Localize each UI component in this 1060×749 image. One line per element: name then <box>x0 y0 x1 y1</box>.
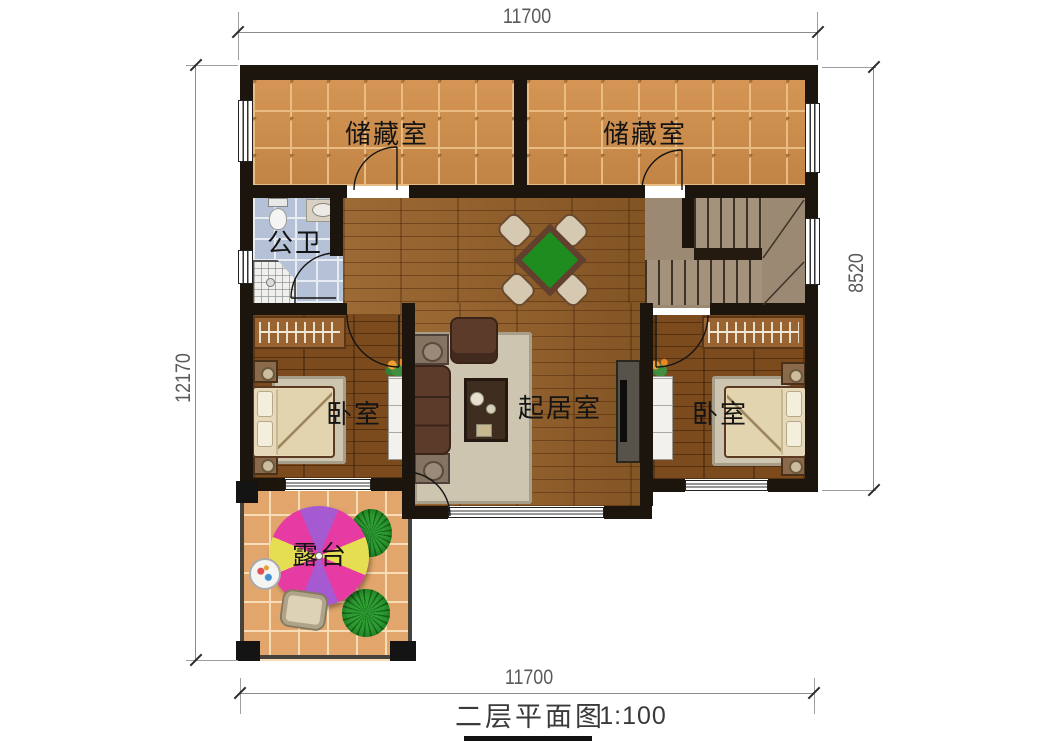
wall <box>402 506 448 519</box>
floor-plan: 储藏室 储藏室 公卫 卧室 起居室 卧室 露台 11700 11700 1217… <box>0 0 1060 749</box>
pillow-icon <box>786 391 802 417</box>
armchair-symbol <box>450 317 498 364</box>
wall <box>640 479 685 492</box>
window <box>285 479 371 490</box>
bedroom-left-label: 卧室 <box>318 398 390 426</box>
window <box>448 507 604 518</box>
dim-bottom-label: 11700 <box>487 666 572 690</box>
wall <box>240 65 818 80</box>
stair-landing-lower <box>762 260 805 305</box>
extension-line <box>822 490 876 491</box>
title-underline <box>464 736 592 741</box>
living-room-label: 起居室 <box>514 392 606 420</box>
side-table-symbol <box>414 453 450 484</box>
storage-right-label: 储藏室 <box>588 117 702 147</box>
window <box>238 100 253 162</box>
wall <box>402 303 415 506</box>
extension-line <box>822 67 876 68</box>
wall <box>409 185 645 198</box>
nightstand-symbol <box>253 360 278 383</box>
dim-left-label: 12170 <box>172 340 196 417</box>
wall <box>604 506 652 519</box>
pillow-icon <box>786 421 802 447</box>
hanger-rail-icon <box>259 322 340 343</box>
shower-drain-icon <box>266 278 275 287</box>
terrace-table-symbol <box>249 558 281 590</box>
wall <box>682 198 694 248</box>
terrace-parapet <box>240 491 244 659</box>
wall <box>640 303 653 506</box>
dresser-symbol <box>651 376 673 460</box>
dimension-line-right <box>873 67 874 491</box>
bedroom-right-label: 卧室 <box>684 398 756 426</box>
hanger-rail-icon <box>708 322 799 343</box>
window <box>805 103 820 173</box>
dimension-line-top <box>238 32 818 33</box>
wall <box>514 65 527 198</box>
wall <box>330 198 343 256</box>
wall <box>685 185 818 198</box>
stair-landing-upper <box>762 198 805 248</box>
wall <box>371 478 415 491</box>
stair-flight-lower <box>645 260 762 305</box>
plan-title: 二层平面图 <box>462 698 598 730</box>
wardrobe-symbol <box>702 316 805 349</box>
window <box>685 480 768 491</box>
wall <box>240 303 347 315</box>
bush-symbol <box>342 589 390 637</box>
plate-icon <box>470 392 484 406</box>
wall <box>768 479 818 492</box>
plate-icon <box>486 404 496 414</box>
stair-flight-upper <box>694 198 762 248</box>
terrace-post <box>236 641 260 661</box>
pillow-icon <box>257 391 273 417</box>
wall <box>694 248 762 260</box>
toilet-tank-symbol <box>268 198 288 207</box>
bathroom-label: 公卫 <box>261 227 329 255</box>
plan-scale: 1:100 <box>600 701 666 731</box>
wall <box>240 185 347 198</box>
terrace-chair-symbol <box>279 588 330 632</box>
storage-left-label: 储藏室 <box>330 117 444 147</box>
extension-line <box>814 678 815 714</box>
terrace-parapet <box>408 519 412 659</box>
terrace-label: 露台 <box>284 539 356 567</box>
nightstand-symbol <box>781 362 806 385</box>
window <box>238 250 253 284</box>
extension-line <box>817 12 818 60</box>
terrace-post <box>390 641 416 661</box>
dim-top-label: 11700 <box>485 5 570 29</box>
hall-floor <box>343 198 645 315</box>
tray-icon <box>476 424 492 437</box>
side-table-symbol <box>413 334 449 365</box>
terrace-post <box>236 481 258 503</box>
tv-symbol <box>620 380 627 442</box>
extension-line <box>238 12 239 60</box>
pillow-icon <box>257 421 273 447</box>
extension-line <box>240 678 241 714</box>
window <box>805 218 820 285</box>
wall <box>710 303 818 315</box>
dim-right-label: 8520 <box>845 235 869 312</box>
wardrobe-symbol <box>253 316 346 349</box>
